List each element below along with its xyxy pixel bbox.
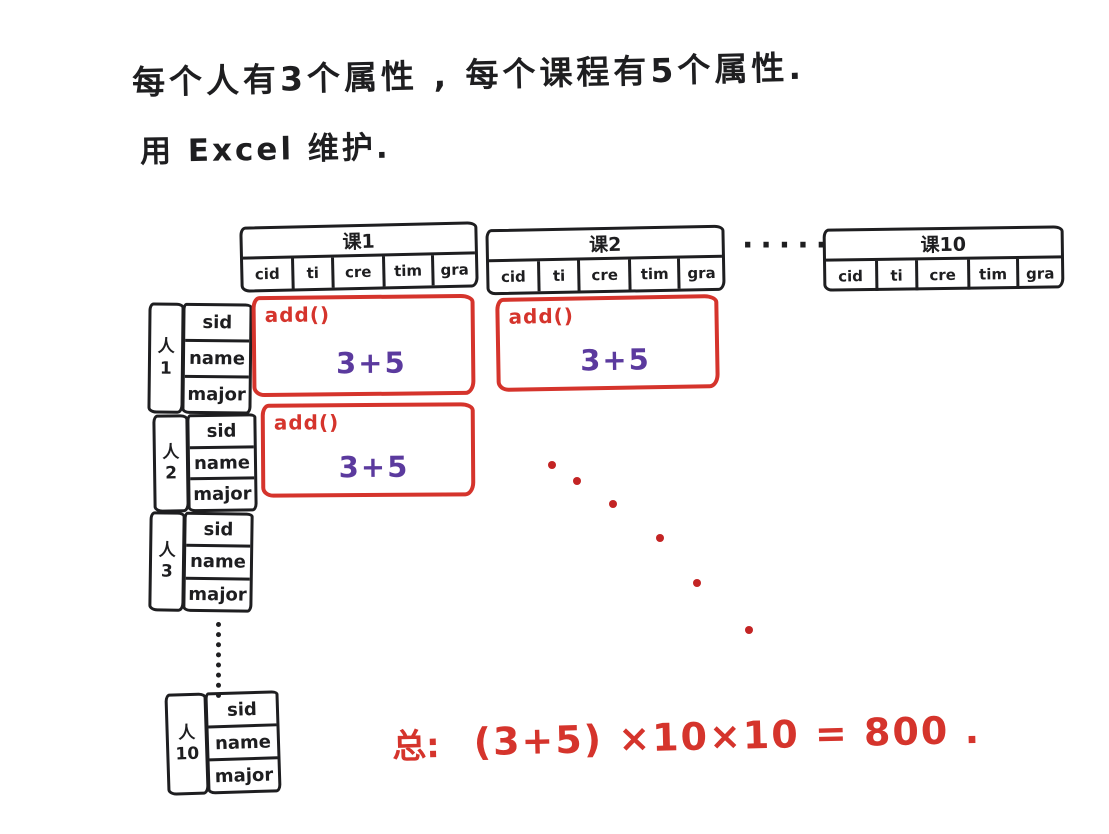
person-3-row-major: major (185, 579, 249, 609)
course-2-col-ti: ti (540, 260, 581, 291)
course-1-col-cre: cre (334, 256, 386, 287)
diagonal-red-dot (693, 579, 701, 587)
person-10-rows: sid name major (204, 690, 281, 794)
add-value: 3+5 (265, 441, 410, 494)
person-2-label: 人 2 (152, 414, 189, 512)
person-table-10: 人 10 sid name major (164, 690, 281, 796)
add-box-person1-course2: add() 3+5 (495, 294, 720, 392)
person-3-row-sid: sid (186, 515, 250, 548)
diagonal-red-dot (656, 534, 664, 542)
add-value: 3+5 (256, 333, 407, 394)
course-2-col-gra: gra (680, 258, 722, 289)
add-func-label: add() (274, 410, 340, 434)
total-formula: 总: (3+5) ×10×10 = 800 . (391, 705, 981, 768)
person-table-2: 人 2 sid name major (152, 413, 257, 512)
diagonal-red-dot (573, 477, 581, 485)
person-1-row-name: name (185, 342, 249, 379)
course-10-col-cre: cre (918, 260, 970, 291)
person-3-label: 人 3 (148, 511, 185, 611)
add-box-person2-course1: add() 3+5 (261, 402, 476, 497)
course-1-columns: cid ti cre tim gra (243, 254, 476, 289)
total-equation: (3+5) ×10×10 = 800 . (473, 707, 981, 763)
course-10-columns: cid ti cre tim gra (826, 258, 1061, 291)
course-2-col-cre: cre (580, 260, 632, 291)
course-1-col-gra: gra (434, 254, 476, 285)
person-ellipsis-dots (216, 622, 221, 698)
course-2-col-cid: cid (489, 261, 541, 292)
person-2-row-major: major (190, 480, 254, 510)
person-3-label-num: 3 (161, 561, 173, 582)
note-line-attributes: 每个人有3个属性 , 每个课程有5个属性. (131, 41, 805, 104)
person-10-label: 人 10 (164, 692, 209, 795)
person-10-row-sid: sid (207, 693, 276, 728)
person-3-rows: sid name major (182, 512, 253, 613)
person-10-label-char: 人 (178, 723, 196, 745)
add-func-label: add() (265, 302, 331, 327)
course-table-10: 课10 cid ti cre tim gra (823, 225, 1065, 291)
course-10-col-tim: tim (970, 259, 1020, 290)
person-3-label-char: 人 (159, 540, 176, 561)
person-2-row-sid: sid (189, 416, 253, 449)
total-prefix: 总: (391, 718, 440, 768)
course-2-columns: cid ti cre tim gra (489, 258, 723, 292)
course-10-col-ti: ti (878, 260, 919, 291)
person-10-row-name: name (209, 726, 278, 761)
course-ellipsis-dots: ····· (742, 228, 834, 263)
course-table-2: 课2 cid ti cre tim gra (485, 225, 725, 296)
whiteboard-canvas: 每个人有3个属性 , 每个课程有5个属性. 用 Excel 维护. 课1 cid… (0, 0, 1109, 834)
person-2-rows: sid name major (186, 413, 257, 512)
course-table-1: 课1 cid ti cre tim gra (239, 221, 478, 292)
course-1-col-ti: ti (294, 258, 335, 289)
person-table-1: 人 1 sid name major (147, 302, 252, 414)
add-box-person1-course1: add() 3+5 (251, 294, 475, 397)
person-1-label-num: 1 (160, 358, 172, 379)
course-1-col-tim: tim (385, 255, 434, 286)
diagonal-red-dot (609, 500, 617, 508)
add-func-label: add() (508, 304, 574, 329)
person-10-label-num: 10 (175, 744, 199, 766)
course-2-col-tim: tim (631, 259, 681, 290)
course-1-col-cid: cid (243, 258, 295, 289)
course-10-col-cid: cid (826, 261, 878, 292)
course-2-header: 课2 (488, 228, 722, 262)
course-10-header: 课10 (826, 228, 1061, 261)
person-1-row-sid: sid (185, 306, 249, 343)
add-value: 3+5 (500, 333, 651, 388)
person-1-label-char: 人 (158, 337, 175, 358)
person-2-label-char: 人 (162, 442, 179, 463)
person-3-row-name: name (186, 547, 250, 580)
diagonal-red-dot (548, 461, 556, 469)
person-10-row-major: major (210, 759, 279, 791)
person-1-rows: sid name major (181, 303, 252, 415)
person-1-row-major: major (184, 378, 248, 412)
course-10-col-gra: gra (1019, 258, 1061, 289)
note-line-excel: 用 Excel 维护. (140, 122, 391, 171)
person-table-3: 人 3 sid name major (148, 511, 253, 612)
person-1-label: 人 1 (147, 302, 184, 413)
person-2-label-num: 2 (165, 463, 177, 484)
person-2-row-name: name (190, 448, 254, 481)
diagonal-red-dot (745, 626, 753, 634)
